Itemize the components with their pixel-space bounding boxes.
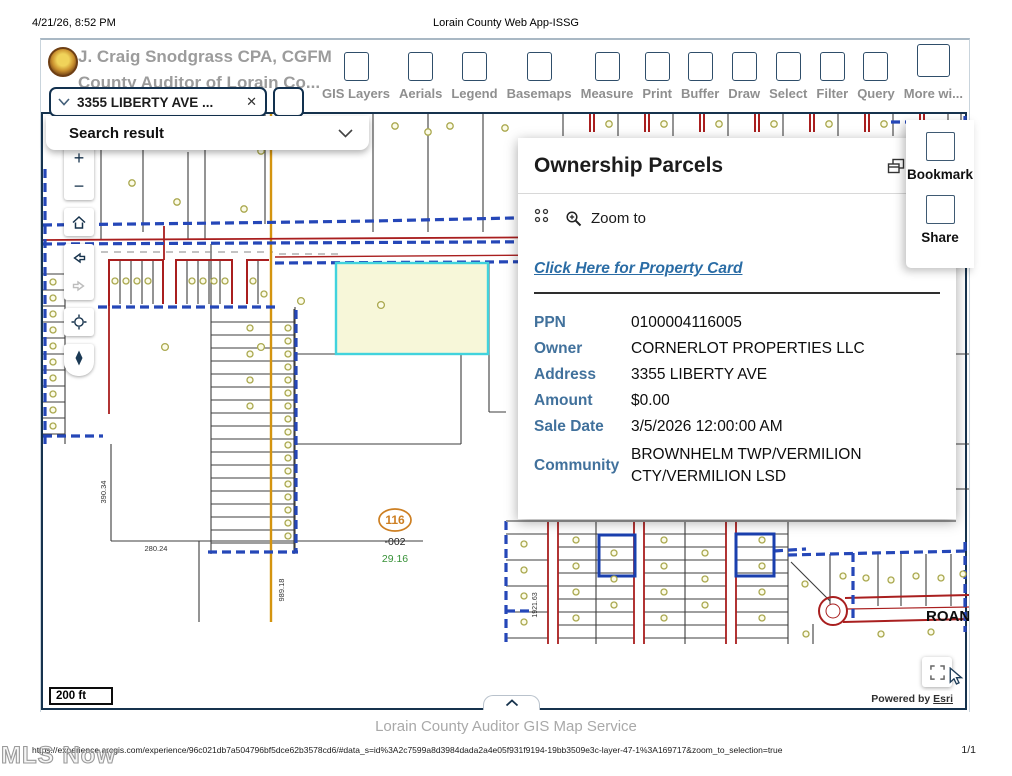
toolbar-query-button[interactable]: Query: [857, 52, 895, 101]
bottom-collapse-tab[interactable]: [483, 695, 540, 710]
aerials-icon: [408, 52, 433, 81]
toolbar-more-widgets-button[interactable]: More wi...: [904, 44, 963, 101]
dimension-label-bottom: 280.24: [145, 544, 168, 553]
field-row-ppn: PPN 0100004116005: [534, 314, 940, 332]
compass-icon: [72, 350, 86, 366]
print-icon: [645, 52, 670, 81]
arrow-left-icon: [71, 250, 87, 266]
zoom-to-label: Zoom to: [591, 210, 646, 227]
scale-bar: 200 ft: [49, 687, 113, 705]
esri-link[interactable]: Esri: [933, 693, 953, 705]
previous-extent-button[interactable]: [64, 244, 94, 272]
dashed-boundary-lines: [101, 252, 343, 254]
dimension-label-right: 1921.63: [532, 592, 539, 617]
buffer-icon: [688, 52, 713, 81]
side-menu: Bookmark Share: [906, 120, 974, 268]
query-icon: [863, 52, 888, 81]
map-viewport[interactable]: 116 -002 29.16 390.34 280.24 989.18 1921…: [41, 112, 967, 710]
field-row-amount: Amount $0.00: [534, 392, 940, 410]
basemaps-icon: [527, 52, 552, 81]
search-value[interactable]: 3355 LIBERTY AVE ...: [77, 95, 238, 110]
map-controls: + −: [64, 144, 94, 384]
actions-menu-button[interactable]: [534, 208, 549, 228]
parcel-acres-label: 29.16: [382, 553, 408, 565]
toolbar-gis-layers-button[interactable]: GIS Layers: [322, 52, 390, 101]
gis-app-window: J. Craig Snodgrass CPA, CGFM County Audi…: [40, 38, 970, 712]
toolbar-measure-button[interactable]: Measure: [581, 52, 634, 101]
search-result-label: Search result: [69, 125, 338, 142]
filter-icon: [820, 52, 845, 81]
arrow-right-icon: [71, 278, 87, 294]
chevron-up-icon: [505, 699, 519, 707]
toolbar-filter-button[interactable]: Filter: [816, 52, 848, 101]
dimension-label-road: 989.18: [277, 579, 286, 602]
zoom-to-button[interactable]: Zoom to: [565, 210, 646, 227]
select-icon: [776, 52, 801, 81]
parcel-number-label: 116: [385, 513, 405, 527]
open-in-window-button[interactable]: [887, 158, 905, 174]
chevron-down-icon[interactable]: [338, 129, 353, 138]
panel-title: Ownership Parcels: [534, 154, 865, 178]
windows-icon: [887, 158, 905, 174]
locate-icon: [71, 314, 87, 330]
mouse-cursor: [948, 667, 966, 690]
toolbar-aerials-button[interactable]: Aerials: [399, 52, 442, 101]
page-indicator: 1/1: [961, 744, 976, 756]
field-row-sale-date: Sale Date 3/5/2026 12:00:00 AM: [534, 418, 940, 436]
gis-layers-icon: [344, 52, 369, 81]
field-row-owner: Owner CORNERLOT PROPERTIES LLC: [534, 340, 940, 358]
toolbar-basemaps-button[interactable]: Basemaps: [507, 52, 572, 101]
street-name-label: ROAN: [926, 608, 969, 625]
document-title: Lorain County Web App-ISSG: [0, 17, 1012, 29]
bookmark-icon[interactable]: [926, 132, 955, 161]
next-extent-button[interactable]: [64, 272, 94, 300]
selected-parcel[interactable]: [336, 263, 488, 354]
toolbar-draw-button[interactable]: Draw: [728, 52, 760, 101]
zoom-to-icon: [565, 210, 582, 227]
ownership-parcels-panel: Ownership Parcels Zoom to: [518, 138, 956, 519]
share-button[interactable]: Share: [921, 230, 959, 245]
map-service-caption: Lorain County Auditor GIS Map Service: [0, 718, 1012, 735]
measure-icon: [595, 52, 620, 81]
draw-icon: [732, 52, 757, 81]
fullscreen-icon: [930, 665, 945, 680]
toolbar-legend-button[interactable]: Legend: [451, 52, 497, 101]
page-url: https://experience.arcgis.com/experience…: [32, 745, 782, 755]
divider: [534, 292, 940, 294]
bookmark-button[interactable]: Bookmark: [907, 167, 973, 182]
powered-by-attribution: Powered by Esri: [864, 691, 960, 707]
field-row-address: Address 3355 LIBERTY AVE: [534, 366, 940, 384]
county-seal-logo: [48, 47, 78, 77]
page: 4/21/26, 8:52 PM Lorain County Web App-I…: [0, 0, 1012, 776]
grid-dots-icon: [534, 208, 549, 223]
compass-button[interactable]: [64, 344, 94, 372]
search-dropdown-chevron-icon[interactable]: [51, 98, 77, 106]
toolbar-buffer-button[interactable]: Buffer: [681, 52, 719, 101]
more-widgets-icon: [917, 44, 950, 77]
mls-watermark: MLS Now: [1, 742, 116, 770]
blue-highlight-parcels: [599, 534, 774, 576]
home-icon: [71, 215, 87, 230]
legend-icon: [462, 52, 487, 81]
parcel-fields: PPN 0100004116005 Owner CORNERLOT PROPER…: [534, 314, 940, 489]
field-row-community: Community BROWNHELM TWP/VERMILION CTY/VE…: [534, 444, 940, 489]
parcel-suffix-label: -002: [384, 536, 405, 548]
toolbar-print-button[interactable]: Print: [642, 52, 672, 101]
search-input[interactable]: 3355 LIBERTY AVE ... ✕: [49, 87, 267, 117]
widget-toolbar: GIS Layers Aerials Legend Basemaps Measu…: [322, 44, 963, 101]
zoom-out-button[interactable]: −: [64, 172, 94, 200]
share-icon[interactable]: [926, 195, 955, 224]
toolbar-select-button[interactable]: Select: [769, 52, 807, 101]
locate-button[interactable]: [64, 308, 94, 336]
search-button[interactable]: [273, 87, 304, 117]
home-button[interactable]: [64, 208, 94, 236]
dimension-label-left: 390.34: [99, 481, 108, 504]
property-card-link[interactable]: Click Here for Property Card: [534, 260, 742, 278]
search-result-dropdown[interactable]: Search result: [46, 116, 369, 150]
app-title: J. Craig Snodgrass CPA, CGFM: [78, 47, 332, 67]
search-clear-icon[interactable]: ✕: [238, 94, 265, 110]
